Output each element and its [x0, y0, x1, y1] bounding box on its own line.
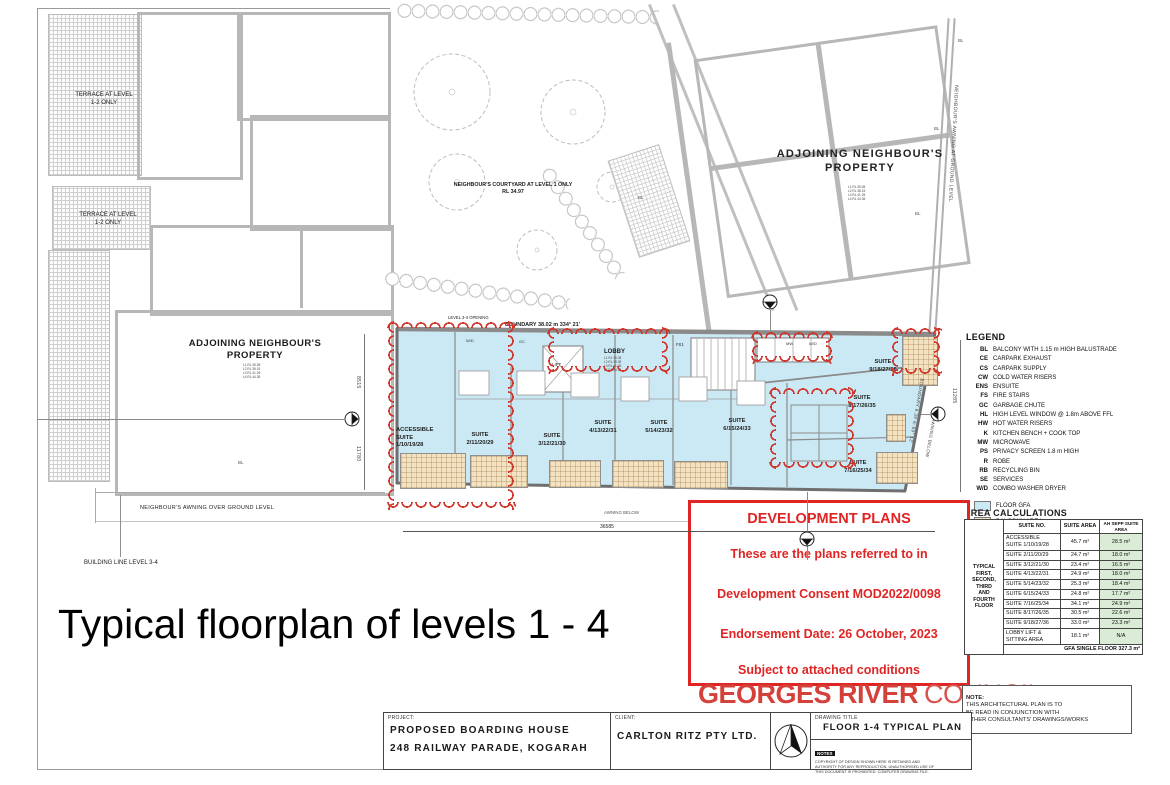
balcony-area — [886, 414, 906, 442]
suite-area: 18.1 m² — [1061, 628, 1100, 645]
balcony-tag: BL — [958, 38, 964, 44]
building-line — [120, 495, 121, 557]
legend-abbr: RB — [966, 467, 988, 476]
legend-text: GARBAGE CHUTE — [993, 402, 1045, 411]
fire-stair-label: FS1 — [676, 342, 684, 347]
section-marker-icon — [930, 406, 946, 422]
suite-label: SUITE 2/11/20/29 — [453, 432, 507, 447]
boundary-top-label: BOUNDARY 38.02 m 334° 21' — [505, 322, 580, 329]
legend-item: RBRECYCLING BIN — [966, 467, 1136, 476]
suite-label: ACCESSIBLE SUITE 1/10/19/28 — [396, 427, 456, 450]
terrace-label: TERRACE AT LEVEL 1-2 ONLY — [62, 92, 146, 107]
legend-item: SESERVICES — [966, 476, 1136, 485]
legend-abbr: HL — [966, 411, 988, 420]
suite-area: 33.0 m² — [1061, 619, 1100, 629]
suite-no: SUITE 5/14/23/32 — [1004, 580, 1061, 590]
note-label: NOTE: — [966, 695, 984, 701]
suite-no: SUITE 6/15/24/33 — [1004, 589, 1061, 599]
legend-text: CARPARK SUPPLY — [993, 365, 1046, 374]
adjoining-rl-levels: L1 RL 35.05 L2 RL 38.15 L3 RL 41.25 L4 R… — [243, 364, 283, 379]
lobby-rl-levels: L1 RL 35.35 L2 RL 38.35 L3 RL 41.35 L4 R… — [604, 357, 638, 372]
building-line-label: BUILDING LINE LEVEL 3-4 — [84, 560, 158, 568]
legend-abbr: CE — [966, 355, 988, 364]
stamp-line: Endorsement Date: 26 October, 2023 — [691, 627, 967, 641]
stamp-line: Development Consent MOD2022/0098 — [691, 587, 967, 601]
legend-item: HWHOT WATER RISERS — [966, 420, 1136, 429]
legend-abbr: HW — [966, 420, 988, 429]
notes-chip: NOTES — [815, 751, 835, 756]
awning-below-label: AWNING BELOW — [604, 510, 639, 516]
page-title: Typical floorplan of levels 1 - 4 — [58, 601, 610, 648]
legend-text: CARPARK EXHAUST — [993, 355, 1052, 364]
section-leader-line — [37, 419, 344, 420]
legend-text: HIGH LEVEL WINDOW @ 1.8m ABOVE FFL — [993, 411, 1113, 420]
wall — [250, 115, 391, 231]
legend-item: MWMICROWAVE — [966, 439, 1136, 448]
opening-label: LEVEL 3-4 OPENING — [448, 315, 489, 320]
notes-area: NOTES COPYRIGHT OF DESIGN SHOWN HERE IS … — [815, 742, 934, 775]
client-cell: CLIENT: CARLTON RITZ PTY LTD. — [611, 713, 771, 769]
drawing-title: FLOOR 1-4 TYPICAL PLAN — [823, 722, 962, 733]
suite-no: SUITE 2/11/20/29 — [1004, 550, 1061, 560]
project-label: PROJECT: — [388, 715, 415, 721]
title-block: PROJECT: PROPOSED BOARDING HOUSE 248 RAI… — [383, 712, 972, 770]
suite-area: 25.3 m² — [1061, 580, 1100, 590]
sepp-area: 28.5 m² — [1100, 534, 1143, 551]
legend-text: ENSUITE — [993, 383, 1019, 392]
adjoining-property-label: ADJOINING NEIGHBOUR'S PROPERTY — [775, 148, 945, 176]
council-logo-bold: GEORGES RIVER — [698, 679, 918, 709]
legend-text: RECYCLING BIN — [993, 467, 1040, 476]
balcony-area — [612, 460, 664, 488]
lift-label: LIFT — [552, 362, 561, 368]
dimension-value: 36585 — [598, 524, 616, 530]
sepp-area: 18.0 m² — [1100, 550, 1143, 560]
balcony-area — [549, 460, 601, 488]
suite-area: 30.5 m² — [1061, 609, 1100, 619]
awning-outline — [95, 488, 96, 523]
table-side-header: TYPICAL FIRST, SECOND, THIRD AND FOURTH … — [965, 520, 1004, 655]
legend-abbr: FS — [966, 392, 988, 401]
suite-area: 45.7 m² — [1061, 534, 1100, 551]
dimension-value: 8515 — [355, 376, 361, 389]
sheet-border-top — [37, 8, 390, 9]
legend-text: COMBO WASHER DRYER — [993, 485, 1066, 494]
legend: LEGEND BLBALCONY WITH 1.15 m HIGH BALUST… — [966, 332, 1136, 527]
balcony-area — [470, 455, 528, 488]
wall — [237, 12, 391, 121]
column-header: AH SEPP SUITE AREA — [1100, 520, 1143, 534]
legend-abbr: GC — [966, 402, 988, 411]
terrace-hatch — [48, 250, 110, 482]
suite-label: SUITE 7/16/25/34 — [832, 460, 884, 475]
suite-label: SUITE 9/18/27/36 — [857, 359, 909, 374]
drawing-sheet: { "page": { "caption": "Typical floorpla… — [0, 0, 1170, 785]
legend-abbr: BL — [966, 346, 988, 355]
legend-text: BALCONY WITH 1.15 m HIGH BALUSTRADE — [993, 346, 1117, 355]
legend-abbr: CS — [966, 365, 988, 374]
stamp-line: These are the plans referred to in — [691, 547, 967, 561]
sepp-area: 16.5 m² — [1100, 560, 1143, 570]
client-label: CLIENT: — [615, 715, 636, 721]
neighbour-awning-over-label: NEIGHBOUR'S AWNING OVER GROUND LEVEL — [140, 505, 274, 512]
suite-area: 34.1 m² — [1061, 599, 1100, 609]
suite-area: 24.9 m² — [1061, 570, 1100, 580]
legend-text: HOT WATER RISERS — [993, 420, 1052, 429]
sepp-area: 18.0 m² — [1100, 570, 1143, 580]
suite-no: SUITE 4/13/22/31 — [1004, 570, 1061, 580]
dimension-value: 11780 — [355, 446, 361, 462]
suite-area: 24.8 m² — [1061, 589, 1100, 599]
dimension-line — [364, 334, 365, 490]
microwave-tag: MW — [786, 341, 793, 346]
legend-text: PRIVACY SCREEN 1.8 m HIGH — [993, 448, 1079, 457]
legend-item: PSPRIVACY SCREEN 1.8 m HIGH — [966, 448, 1136, 457]
dimension-line — [960, 340, 961, 492]
washer-dryer-tag: W/D — [466, 338, 474, 343]
balcony-area — [400, 453, 466, 489]
legend-text: COLD WATER RISERS — [993, 374, 1056, 383]
section-marker-icon — [762, 294, 778, 310]
suite-label: SUITE 5/14/23/32 — [633, 420, 685, 435]
area-calculations-table: TYPICAL FIRST, SECOND, THIRD AND FOURTH … — [964, 519, 1143, 655]
development-plans-stamp: DEVELOPMENT PLANS These are the plans re… — [688, 500, 970, 686]
adjoining-property-label: ADJOINING NEIGHBOUR'S PROPERTY — [175, 338, 335, 362]
legend-item: HLHIGH LEVEL WINDOW @ 1.8m ABOVE FFL — [966, 411, 1136, 420]
wall — [817, 25, 952, 152]
legend-abbr: PS — [966, 448, 988, 457]
courtyard-label: NEIGHBOUR'S COURTYARD AT LEVEL 1 ONLY RL… — [447, 182, 579, 195]
divider — [811, 739, 971, 740]
legend-item: BLBALCONY WITH 1.15 m HIGH BALUSTRADE — [966, 346, 1136, 355]
copyright-text: COPYRIGHT OF DESIGN SHOWN HERE IS RETAIN… — [815, 760, 934, 775]
sepp-area: 23.3 m² — [1100, 619, 1143, 629]
legend-item: CECARPARK EXHAUST — [966, 355, 1136, 364]
stamp-title: DEVELOPMENT PLANS — [691, 511, 967, 527]
garbage-chute-tag: GC — [519, 339, 525, 344]
washer-dryer-tag: W/D — [809, 341, 817, 346]
legend-item: KKITCHEN BENCH + COOK TOP — [966, 430, 1136, 439]
legend-item: ENSENSUITE — [966, 383, 1136, 392]
suite-no: SUITE 7/16/25/34 — [1004, 599, 1061, 609]
legend-text: FIRE STAIRS — [993, 392, 1030, 401]
sepp-area: 24.9 m² — [1100, 599, 1143, 609]
project-name: PROPOSED BOARDING HOUSE — [390, 725, 570, 736]
legend-item: GCGARBAGE CHUTE — [966, 402, 1136, 411]
column-header: SUITE AREA — [1061, 520, 1100, 534]
suite-area: 24.7 m² — [1061, 550, 1100, 560]
adjoining-rl-levels: L1 RL 35.05 L2 RL 38.15 L3 RL 41.25 L4 R… — [848, 186, 888, 201]
suite-no: SUITE 9/18/27/36 — [1004, 619, 1061, 629]
north-arrow-cell — [771, 713, 811, 769]
sepp-area: 22.6 m² — [1100, 609, 1143, 619]
terrace-label: TERRACE AT LEVEL 1-2 ONLY — [64, 212, 152, 227]
section-marker-icon — [799, 531, 815, 547]
project-address: 248 RAILWAY PARADE, KOGARAH — [390, 743, 588, 754]
legend-item: FSFIRE STAIRS — [966, 392, 1136, 401]
drawing-title-label: DRAWING TITLE — [815, 715, 858, 721]
balcony-area — [674, 461, 728, 489]
wall — [137, 12, 243, 180]
column-header: SUITE NO. — [1004, 520, 1061, 534]
client-name: CARLTON RITZ PTY LTD. — [617, 731, 757, 742]
balcony-tag: BL — [915, 211, 921, 217]
suite-no: SUITE 3/12/21/30 — [1004, 560, 1061, 570]
legend-text: MICROWAVE — [993, 439, 1030, 448]
dimension-line — [403, 531, 935, 532]
gfa-total: GFA SINGLE FLOOR 327.3 m² — [1004, 645, 1143, 655]
legend-item: W/DCOMBO WASHER DRYER — [966, 485, 1136, 494]
sheet-border-left — [37, 8, 38, 769]
hedge-row — [397, 3, 659, 26]
legend-text: ROBE — [993, 458, 1010, 467]
section-leader-line — [807, 492, 808, 560]
legend-text: KITCHEN BENCH + COOK TOP — [993, 430, 1080, 439]
section-marker-icon — [344, 411, 360, 427]
suite-area: 23.4 m² — [1061, 560, 1100, 570]
suite-no: ACCESSIBLE SUITE 1/10/19/28 — [1004, 534, 1061, 551]
legend-abbr: SE — [966, 476, 988, 485]
balcony-tag: BL — [934, 126, 940, 132]
wall — [300, 228, 303, 308]
sepp-area: 18.4 m² — [1100, 580, 1143, 590]
note-text: THIS ARCHITECTURAL PLAN IS TO BE READ IN… — [966, 702, 1128, 724]
suite-no: SUITE 8/17/26/35 — [1004, 609, 1061, 619]
dimension-value: 11285 — [951, 388, 957, 404]
balcony-tag: BL — [238, 460, 244, 466]
suite-no: LOBBY LIFT & SITTING AREA — [1004, 628, 1061, 645]
legend-abbr: MW — [966, 439, 988, 448]
note-box: NOTE: THIS ARCHITECTURAL PLAN IS TO BE R… — [962, 685, 1132, 734]
legend-text: SERVICES — [993, 476, 1023, 485]
legend-item: CSCARPARK SUPPLY — [966, 365, 1136, 374]
suite-label: SUITE 8/17/26/35 — [836, 395, 888, 410]
legend-abbr: ENS — [966, 383, 988, 392]
area-calculations-title: AREA CALCULATIONS — [964, 508, 1067, 518]
suite-label: SUITE 6/15/24/33 — [711, 418, 763, 433]
suite-label: SUITE 3/12/21/30 — [526, 433, 578, 448]
legend-abbr: CW — [966, 374, 988, 383]
drawing-title-cell: DRAWING TITLE FLOOR 1-4 TYPICAL PLAN NOT… — [811, 713, 971, 769]
sepp-area: 17.7 m² — [1100, 589, 1143, 599]
project-cell: PROJECT: PROPOSED BOARDING HOUSE 248 RAI… — [384, 713, 611, 769]
awning-outline — [95, 492, 385, 493]
sepp-area: N/A — [1100, 628, 1143, 645]
legend-abbr: W/D — [966, 485, 988, 494]
legend-abbr: R — [966, 458, 988, 467]
legend-item: CWCOLD WATER RISERS — [966, 374, 1136, 383]
wall — [150, 225, 394, 316]
legend-title: LEGEND — [966, 332, 1136, 342]
stamp-line: Subject to attached conditions — [691, 663, 967, 677]
legend-abbr: K — [966, 430, 988, 439]
north-arrow-icon — [772, 718, 810, 764]
suite-label: SUITE 4/13/22/31 — [577, 420, 629, 435]
legend-item: RROBE — [966, 458, 1136, 467]
